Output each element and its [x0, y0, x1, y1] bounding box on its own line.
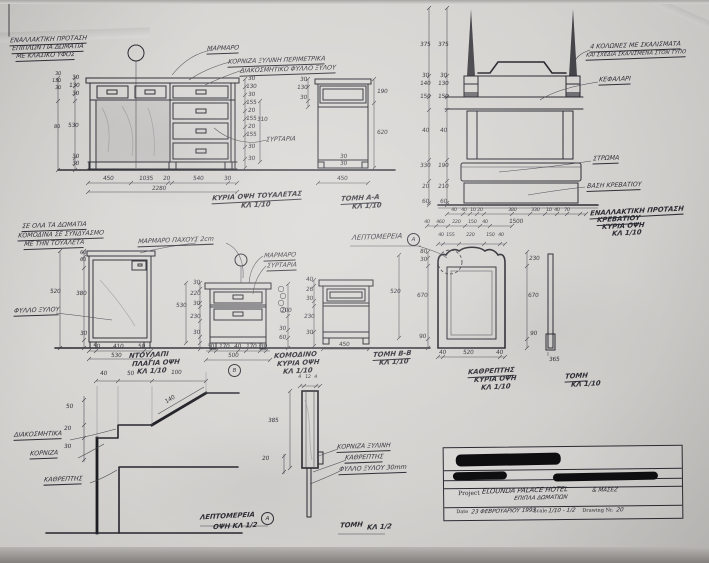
desk-elevation-drawing [56, 45, 395, 194]
date-label: Date [456, 509, 468, 515]
title-block-divider [444, 468, 682, 471]
mirror-detail-caption: ΤΟΜΗ [340, 520, 364, 529]
dim: 190 [377, 89, 388, 95]
mirror-side-section-drawing [546, 254, 555, 356]
dim-total: 530 [111, 353, 122, 359]
dim: 90 [530, 331, 538, 337]
dim: 230 [529, 256, 540, 262]
dim: 20 [248, 124, 256, 130]
drawers-label: ΣΥΡΤΑΡΙΑ [266, 135, 296, 143]
date-value: 23 ΦΕΒΡΟΥΑΡΙΟΥ 1993 [471, 508, 536, 516]
dim: 140 [420, 81, 431, 87]
desk-caption-scale: ΚΛ 1/10 [241, 200, 271, 210]
dim: 30 [248, 144, 256, 150]
dim: 20 [262, 456, 270, 462]
dim: 130 [246, 84, 257, 90]
dim-total: 500 [228, 353, 239, 359]
desk-section-aa-drawing [306, 77, 376, 185]
detail-header-underline [350, 246, 447, 258]
dim: 30 [279, 326, 287, 332]
dim-total: 2280 [152, 186, 167, 192]
section-aa-caption-scale: ΚΛ 1/10 [352, 201, 382, 211]
dim: 4 [314, 375, 317, 380]
dim: 30 [420, 257, 428, 263]
title-block: Project ELOUNDA PALACE HOTEL ΕΠΙΠΛΑ ΔΩΜΑ… [443, 445, 684, 522]
dim: 30 [64, 444, 72, 450]
dim: 30 [55, 85, 62, 91]
dim: 365 [549, 357, 560, 363]
dim: 30 [72, 154, 80, 160]
dim: 450 [337, 176, 348, 182]
dim: 30 [340, 161, 348, 167]
dim: 30 [300, 77, 308, 83]
wardrobe-caption: ΚΛ 1/10 [137, 366, 167, 376]
dim: 520 [463, 350, 474, 356]
dim: 150 [468, 220, 477, 225]
redaction-bar [453, 471, 507, 480]
dim: 30 [248, 76, 256, 82]
scale-label: Scale [533, 508, 547, 514]
mirror-elevation-drawing [426, 242, 529, 359]
dim: 40 [306, 277, 314, 283]
marble-label: ΜΑΡΜΑΡΟ [207, 44, 240, 54]
detail-a-drawing [46, 372, 268, 533]
dim: 170 [219, 344, 230, 350]
dim: 330 [420, 163, 431, 169]
project-label: Project [458, 490, 480, 497]
dim: 155 [446, 233, 455, 238]
redaction-bar [456, 453, 561, 467]
dim: 40 [461, 208, 467, 213]
dim: 30 [224, 176, 232, 182]
dim: 375 [420, 42, 431, 48]
dim: 30 [340, 154, 348, 160]
redaction-bar [553, 472, 658, 482]
dim: 10 [470, 208, 476, 213]
dim: 375 [438, 42, 449, 48]
dim: 460 [436, 220, 445, 225]
dim: 530 [176, 303, 187, 309]
dim: 155 [246, 132, 257, 138]
mirror-label: ΚΑΘΡΕΠΤΗΣ [44, 475, 83, 485]
dim: 30 [300, 95, 308, 101]
dim: 30 [72, 75, 80, 81]
dim: 385 [268, 418, 279, 424]
dim: 410 [113, 344, 124, 350]
dim: 30 [422, 73, 430, 79]
dim: 1035 [139, 176, 154, 182]
dim: 40 [438, 233, 444, 238]
dim: 40 [234, 344, 242, 350]
detail-marker-circle [128, 45, 144, 61]
photo-edge [0, 0, 709, 4]
drawers-label: ΣΥΡΤΑΡΙΑ [267, 261, 298, 271]
dim: 130 [438, 81, 449, 87]
cornice-label: ΚΟΡΝΙΖΑ [30, 449, 59, 459]
dim: 200 [281, 308, 292, 314]
dim: 220 [190, 291, 201, 297]
dim: 20 [477, 208, 483, 213]
dim: 40 [554, 208, 560, 213]
dim: 100 [171, 370, 182, 376]
dim: 40 [424, 220, 430, 225]
dim: 220 [466, 233, 475, 238]
dim: 20 [248, 108, 256, 114]
dim: 530 [68, 123, 79, 129]
detail-circle-dashed [438, 250, 462, 274]
dim: 40 [482, 220, 488, 225]
dim: 50 [66, 404, 74, 410]
dim: 540 [193, 176, 204, 182]
wood-veneer-label: ΦΥΛΛΟ ΞΥΛΟΥ [14, 306, 60, 316]
dim: 30 [72, 91, 80, 97]
dim: 40 [451, 208, 457, 213]
blueprint-sheet: ΕΝΑΛΛΑΚΤΙΚΗ ΠΡΟΤΑΣΗ ΕΠΙΠΛΩΝ ΓΙΑ ΔΩΜΑΤΙΑ … [0, 0, 709, 563]
dim: 155 [246, 116, 257, 122]
dim: 40 [498, 233, 504, 238]
project-value-2: ΕΠΙΠΛΑ ΔΩΜΑΤΙΩΝ [514, 494, 568, 502]
mirror-caption: ΚΛ 1/10 [481, 382, 511, 392]
dim: 26 [306, 287, 314, 293]
dim: 150 [486, 233, 495, 238]
dim: 130 [52, 78, 62, 84]
dim: 130 [297, 85, 308, 91]
dim: 40 [100, 371, 108, 377]
dim-total: 1500 [509, 219, 524, 225]
dim: 380 [76, 291, 87, 297]
dim: 670 [528, 293, 539, 299]
dim: 670 [417, 293, 428, 299]
dim: 20 [64, 426, 72, 432]
dim: 50 [138, 344, 146, 350]
dim: 60 [80, 250, 87, 256]
dim: 50 [93, 344, 101, 350]
nightstand-section-bb-drawing [312, 253, 401, 351]
section-bb-caption: ΚΛ 1/10 [379, 357, 409, 367]
dim: 150 [420, 94, 431, 100]
dim: 230 [190, 314, 201, 320]
bed-elevation-drawing [425, 6, 598, 228]
dim: 70 [564, 208, 570, 213]
project-value-3: & ΜΑΣΕΖ [592, 487, 619, 494]
dim: 170 [246, 344, 257, 350]
dim: 310 [257, 117, 268, 123]
dim: 220 [452, 220, 461, 225]
dim: 30 [260, 344, 268, 350]
dim: 60 [279, 335, 287, 341]
dim: 40 [496, 350, 504, 356]
dim: 50 [127, 371, 135, 377]
scale-value: 1/10 - 1/2 [548, 508, 576, 515]
bed-caption: ΚΛ 1/10 [612, 228, 642, 238]
dim: 620 [377, 130, 388, 136]
dim: 30 [306, 330, 314, 336]
detail-a-caption-mark: Α [261, 512, 274, 525]
dim: 30 [440, 73, 448, 79]
dim: 330 [531, 208, 540, 213]
dim: 30 [72, 161, 80, 167]
dim: 190 [438, 163, 449, 169]
detail-mark-a: Α [407, 233, 420, 246]
dim: 40 [440, 128, 448, 134]
dim: 380 [508, 208, 517, 213]
dim: 150 [438, 94, 449, 100]
dim: 20 [163, 176, 171, 182]
dim: 4 [298, 375, 301, 380]
dim: 520 [390, 289, 401, 295]
marble-label: ΜΑΡΜΑΡΟ [264, 251, 297, 261]
dim: 30 [193, 301, 201, 307]
drawing-nr-label: Drawing Nr. [582, 507, 613, 513]
dim: 12 [305, 375, 311, 380]
headboard-label: ΚΕΦΑΛΑΡΙ [599, 75, 632, 85]
dim: 30 [248, 156, 256, 162]
detail-mark-b: Β [228, 364, 241, 377]
dim: 80 [420, 249, 428, 255]
dim: 230 [304, 314, 315, 320]
dim: 450 [103, 176, 114, 182]
dim: 60 [422, 199, 430, 205]
dim: 80 [54, 124, 61, 130]
dim: 60 [440, 199, 448, 205]
dim: 90 [419, 334, 427, 340]
dim: 30 [193, 330, 201, 336]
dim: 40 [422, 128, 430, 134]
dim: 450 [339, 342, 350, 348]
photo-edge [0, 547, 709, 563]
mirror-label: ΚΑΘΡΕΠΤΗΣ [345, 453, 384, 463]
dim: 20 [422, 184, 430, 190]
dim: 40 [439, 350, 447, 356]
dim: 10 [546, 208, 552, 213]
mirror-detail-caption-scale: ΚΛ 1/2 [367, 522, 393, 531]
dim: 30 [248, 92, 256, 98]
dim: 30 [306, 296, 314, 302]
mirror-side-caption: ΚΛ 1/10 [571, 379, 601, 389]
dim: 520 [50, 289, 61, 295]
drawing-nr-value: 20 [616, 507, 624, 513]
dim: 155 [246, 100, 257, 106]
dim: 210 [438, 184, 449, 190]
mattress-label: ΣΤΡΩΜΑ [593, 155, 620, 164]
dim: 30 [207, 344, 215, 350]
dim: 60 [80, 257, 87, 263]
dim: 30 [55, 71, 62, 77]
dim: 30 [193, 280, 201, 286]
dim: 30 [80, 331, 88, 337]
trim-label: ΔΙΑΚΟΣΜΗΤΙΚΑ [14, 430, 63, 440]
dim: 130 [69, 83, 80, 89]
